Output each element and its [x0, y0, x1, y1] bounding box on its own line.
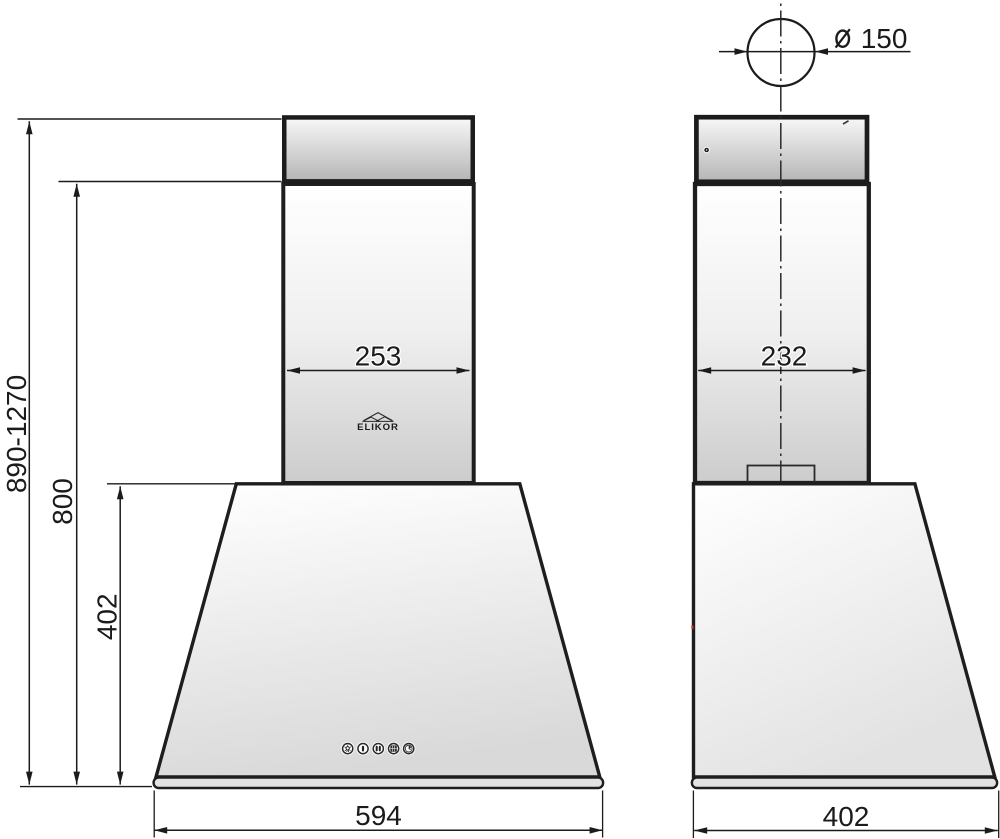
svg-text:253: 253: [355, 340, 402, 371]
svg-text:800: 800: [47, 478, 78, 525]
svg-text:890-1270: 890-1270: [1, 375, 32, 493]
svg-text:402: 402: [823, 801, 870, 832]
svg-text:232: 232: [761, 340, 808, 371]
svg-text:594: 594: [355, 800, 402, 831]
svg-text:402: 402: [92, 593, 123, 640]
svg-text:ELIKOR: ELIKOR: [357, 422, 399, 433]
svg-text:150: 150: [861, 23, 908, 54]
